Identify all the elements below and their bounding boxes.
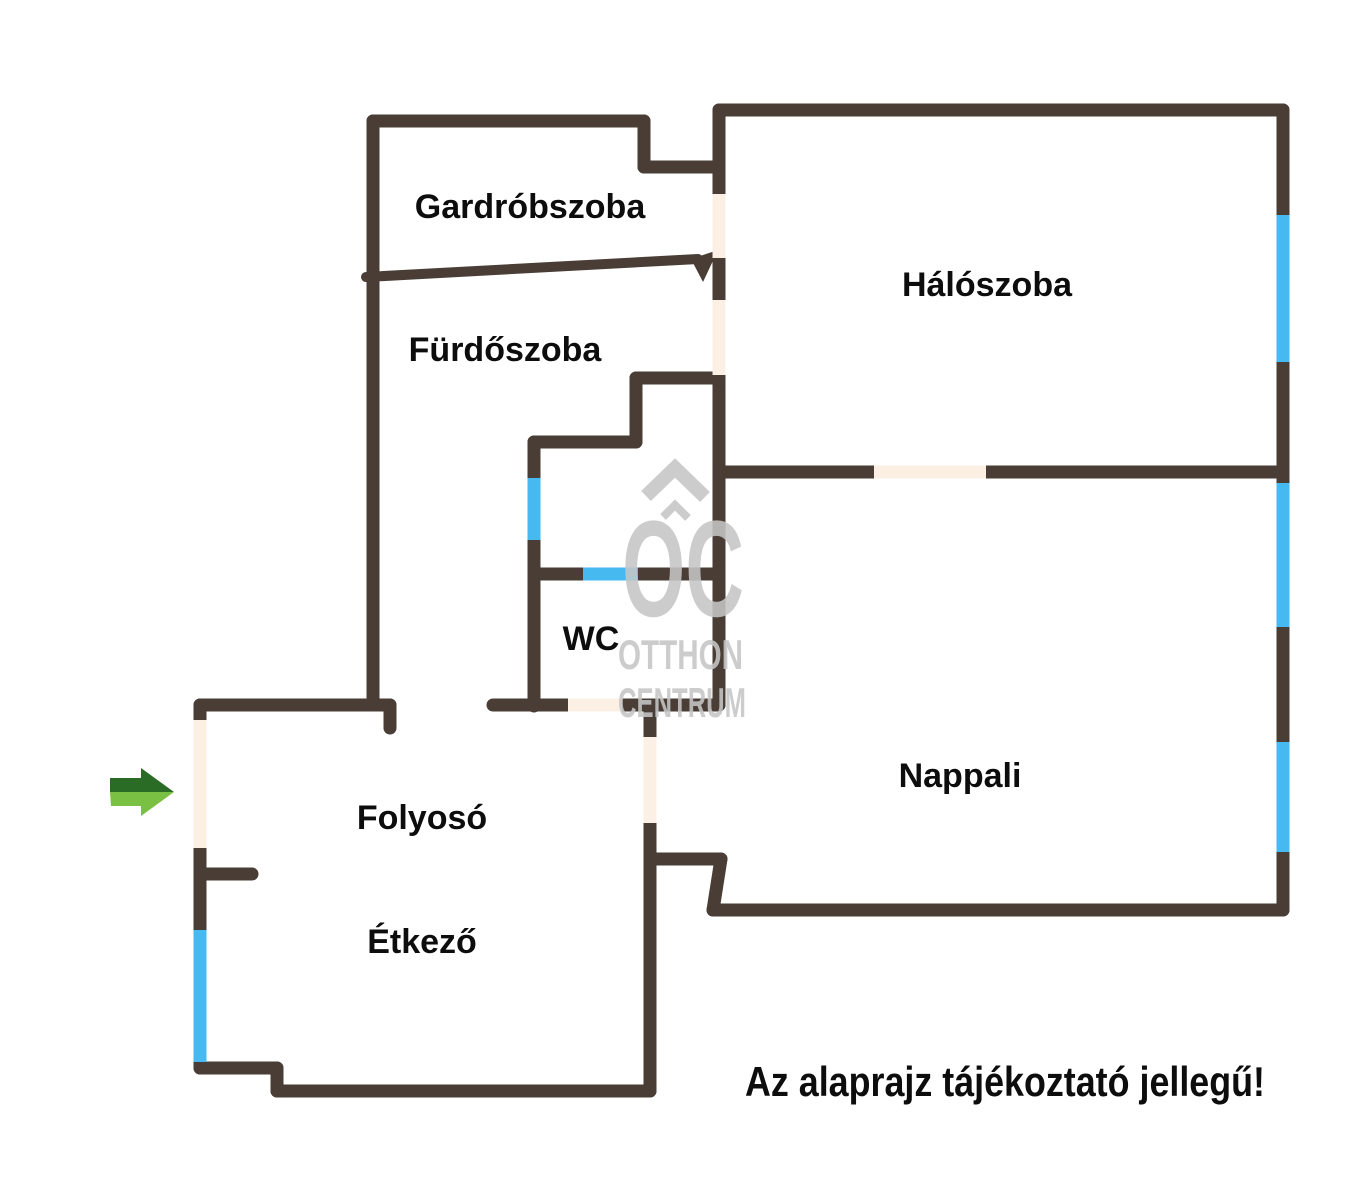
room-label-folyoso: Folyosó — [357, 799, 487, 837]
room-label-haloszoba: Hálószoba — [902, 266, 1073, 304]
disclaimer-text: Az alaprajz tájékoztató jellegű! — [745, 1058, 1265, 1105]
room-label-gardrobszoba: Gardróbszoba — [415, 188, 647, 226]
room-label-etkezo: Étkező — [367, 923, 477, 961]
room-label-furdoszoba: Fürdőszoba — [409, 331, 603, 369]
watermark-centrum: CENTRUM — [618, 679, 746, 726]
room-label-nappali: Nappali — [899, 757, 1022, 795]
watermark-oc: OC — [622, 493, 744, 646]
wall — [713, 859, 721, 910]
floor-plan: OC OTTHON CENTRUM Gardróbszoba Fürdőszob… — [0, 0, 1360, 1180]
watermark-logo: OC OTTHON CENTRUM — [618, 468, 746, 726]
room-label-wc: WC — [563, 620, 620, 658]
watermark-otthon: OTTHON — [618, 631, 743, 678]
